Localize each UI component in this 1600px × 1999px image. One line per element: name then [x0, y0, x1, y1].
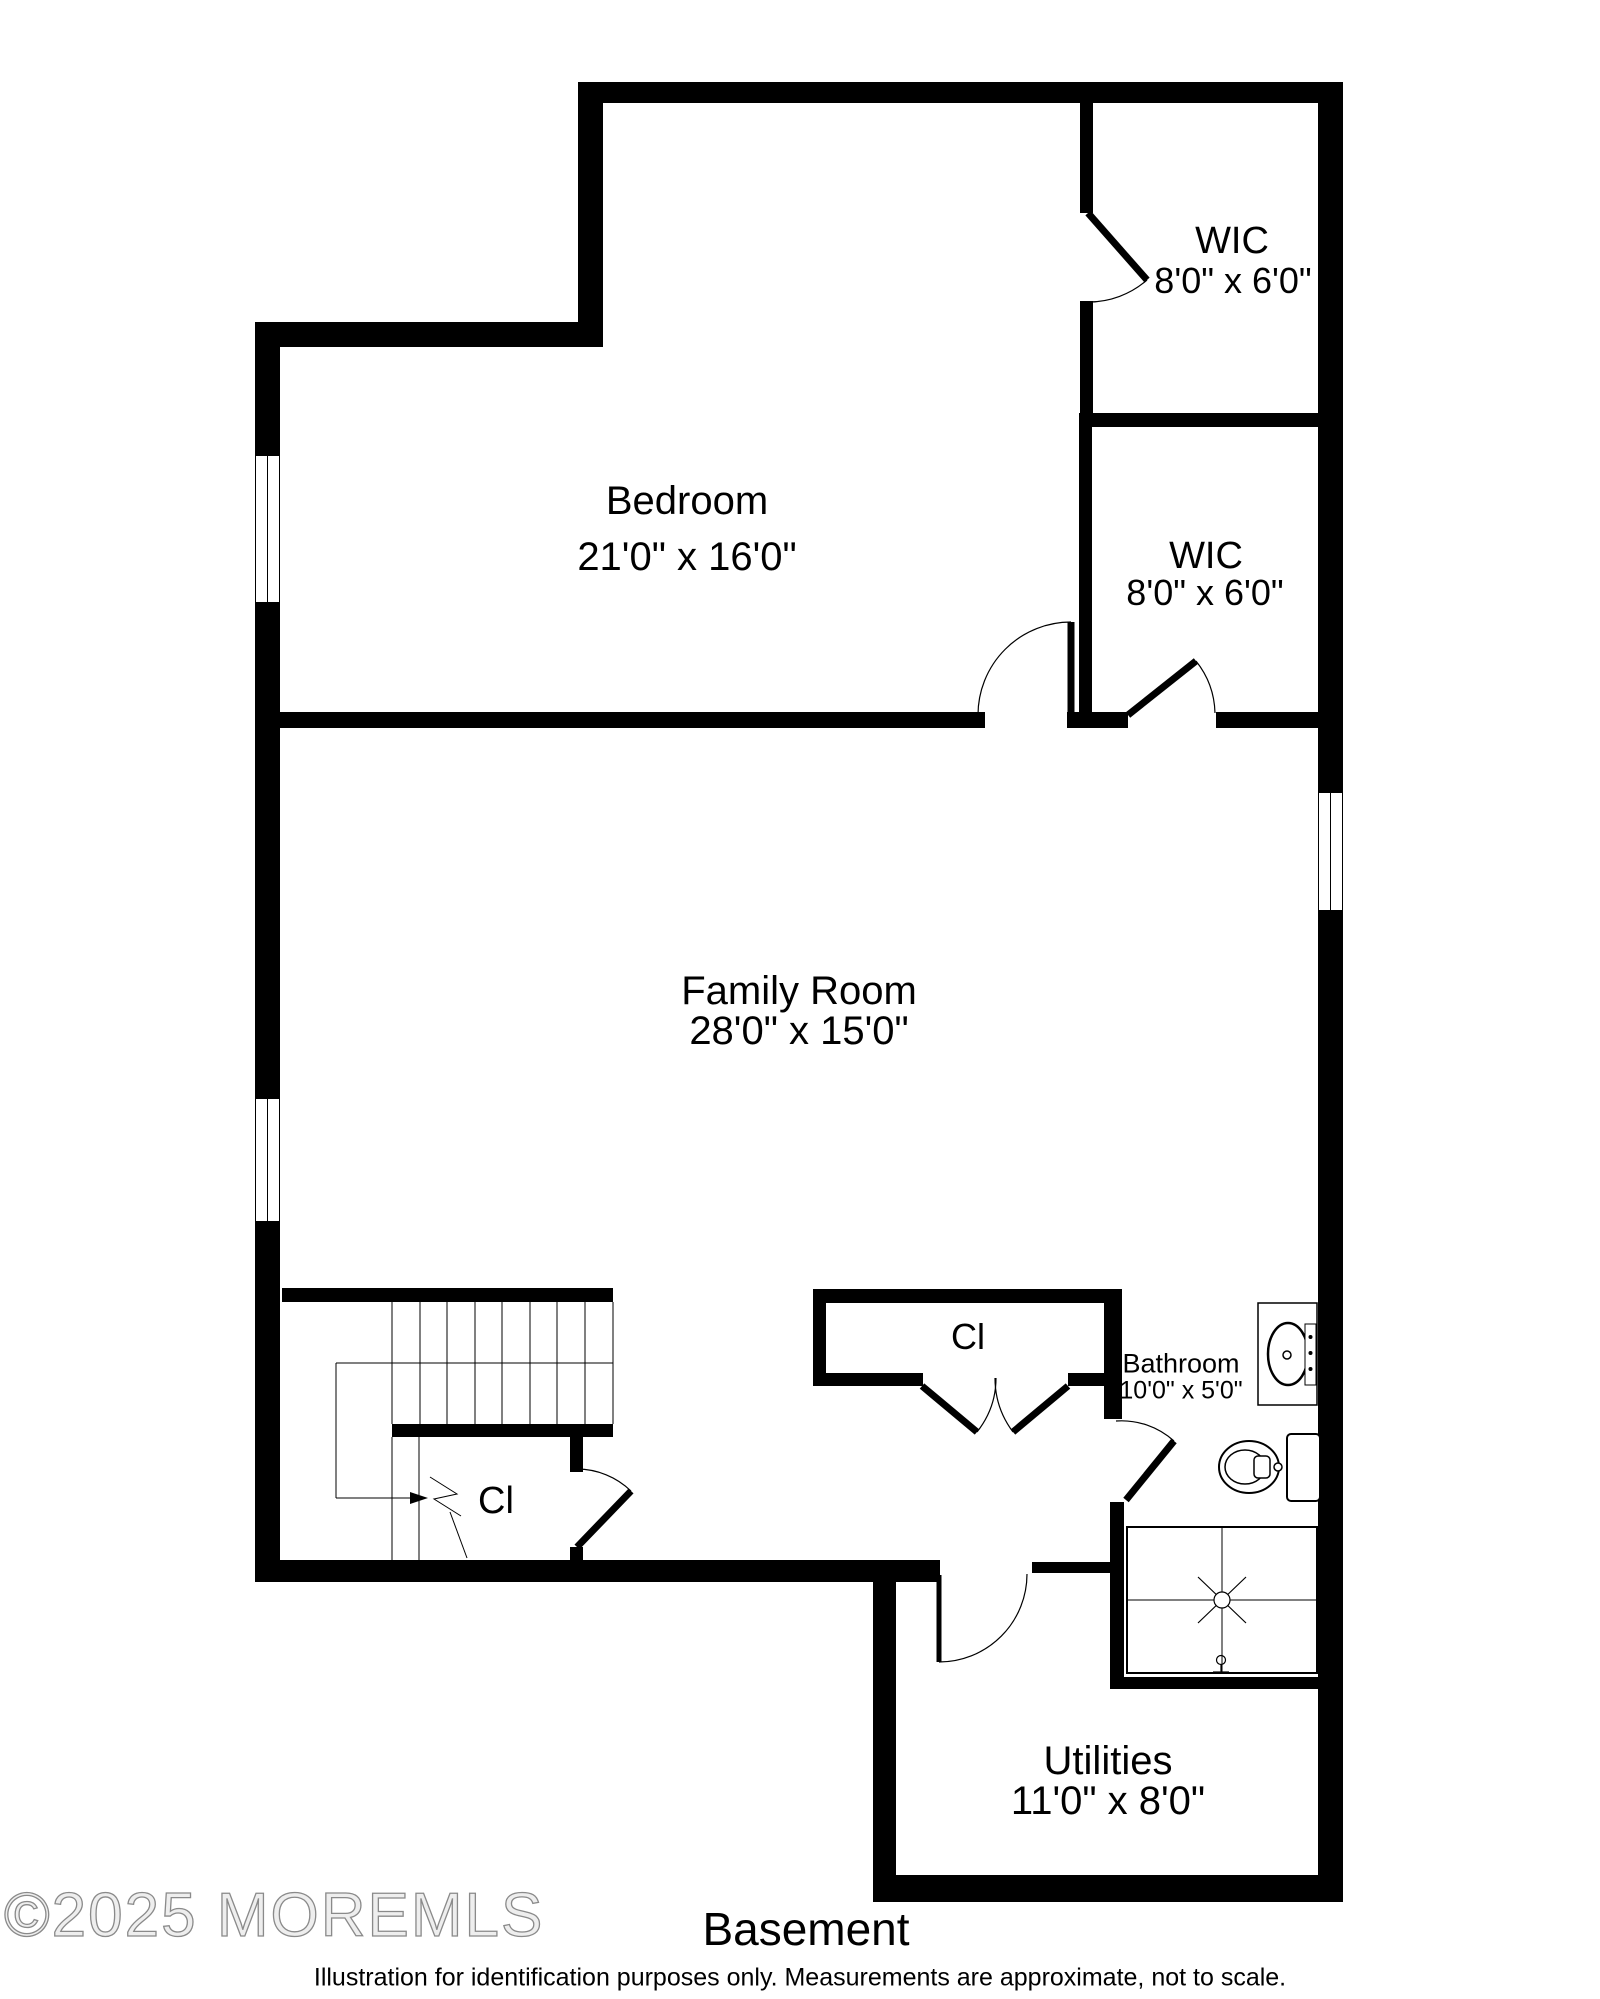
wall-segment: [255, 322, 280, 455]
wall-segment: [1067, 712, 1128, 728]
room-dims-utilities: 11'0" x 8'0": [1011, 1781, 1205, 1821]
wall-segment: [1318, 911, 1343, 1902]
room-label-closet-stairs: Cl: [478, 1482, 514, 1520]
toilet-symbol: [1219, 1434, 1320, 1501]
window-symbol: [256, 456, 280, 603]
door-swing-symbol: [978, 622, 1071, 715]
wall-segment: [1080, 413, 1343, 427]
wall-segment: [1216, 712, 1343, 728]
wall-segment: [570, 1547, 583, 1570]
room-label-wic-middle: WIC: [1169, 537, 1243, 575]
sink-vanity-symbol: [1258, 1303, 1317, 1405]
room-label-bedroom: Bedroom: [606, 481, 768, 521]
window-symbol: [256, 1099, 280, 1222]
wall-segment: [255, 1222, 280, 1582]
stair-direction-arrow: [336, 1477, 467, 1558]
wall-segment: [813, 1289, 826, 1386]
wall-segment: [570, 1435, 583, 1472]
wall-segment: [1318, 82, 1343, 792]
room-label-utilities: Utilities: [1044, 1741, 1173, 1781]
disclaimer-text: Illustration for identification purposes…: [314, 1966, 1286, 1991]
wall-segment: [1079, 413, 1092, 728]
wall-segment: [873, 1875, 1343, 1902]
room-dims-wic-middle: 8'0" x 6'0": [1126, 575, 1283, 611]
room-dims-bedroom: 21'0" x 16'0": [577, 537, 796, 577]
wall-segment: [1080, 103, 1093, 213]
room-dims-bathroom: 10'0" x 5'0": [1119, 1379, 1242, 1404]
doors: [577, 213, 1215, 1662]
wall-segment: [280, 712, 985, 728]
watermark: ©2025 MOREMLS: [4, 1880, 544, 1951]
room-dims-wic-top: 8'0" x 6'0": [1154, 263, 1311, 299]
wall-segment: [873, 1582, 896, 1902]
room-label-closet-hall: Cl: [951, 1319, 985, 1355]
wall-segment: [282, 1288, 613, 1302]
floor-title: Basement: [702, 1906, 909, 1952]
door-swing-symbol: [1088, 213, 1147, 302]
door-swing-symbol: [1116, 1421, 1174, 1500]
wall-segment: [813, 1373, 923, 1386]
wall-segment: [255, 1560, 940, 1582]
wall-segment: [1110, 1502, 1124, 1689]
wall-segment: [1112, 1677, 1318, 1689]
wall-segment: [255, 322, 603, 347]
wall-segment: [1080, 301, 1093, 413]
bifold-door-symbol: [922, 1378, 1068, 1432]
room-label-wic-top: WIC: [1195, 222, 1269, 260]
shower-symbol: [1127, 1527, 1317, 1673]
floor-plan: Bedroom 21'0" x 16'0" WIC 8'0" x 6'0" WI…: [0, 0, 1600, 1999]
door-swing-symbol: [1128, 661, 1215, 715]
wall-segment: [255, 603, 280, 1098]
door-swing-symbol: [939, 1574, 1027, 1662]
wall-segment: [578, 82, 1343, 103]
room-dims-family-room: 28'0" x 15'0": [689, 1011, 908, 1051]
door-swing-symbol: [577, 1469, 631, 1547]
wall-segment: [1032, 1562, 1112, 1573]
room-label-bathroom: Bathroom: [1122, 1351, 1239, 1378]
wall-segment: [813, 1289, 1117, 1303]
wall-segment: [578, 82, 603, 347]
room-label-family-room: Family Room: [681, 971, 917, 1011]
window-symbol: [1319, 793, 1343, 911]
